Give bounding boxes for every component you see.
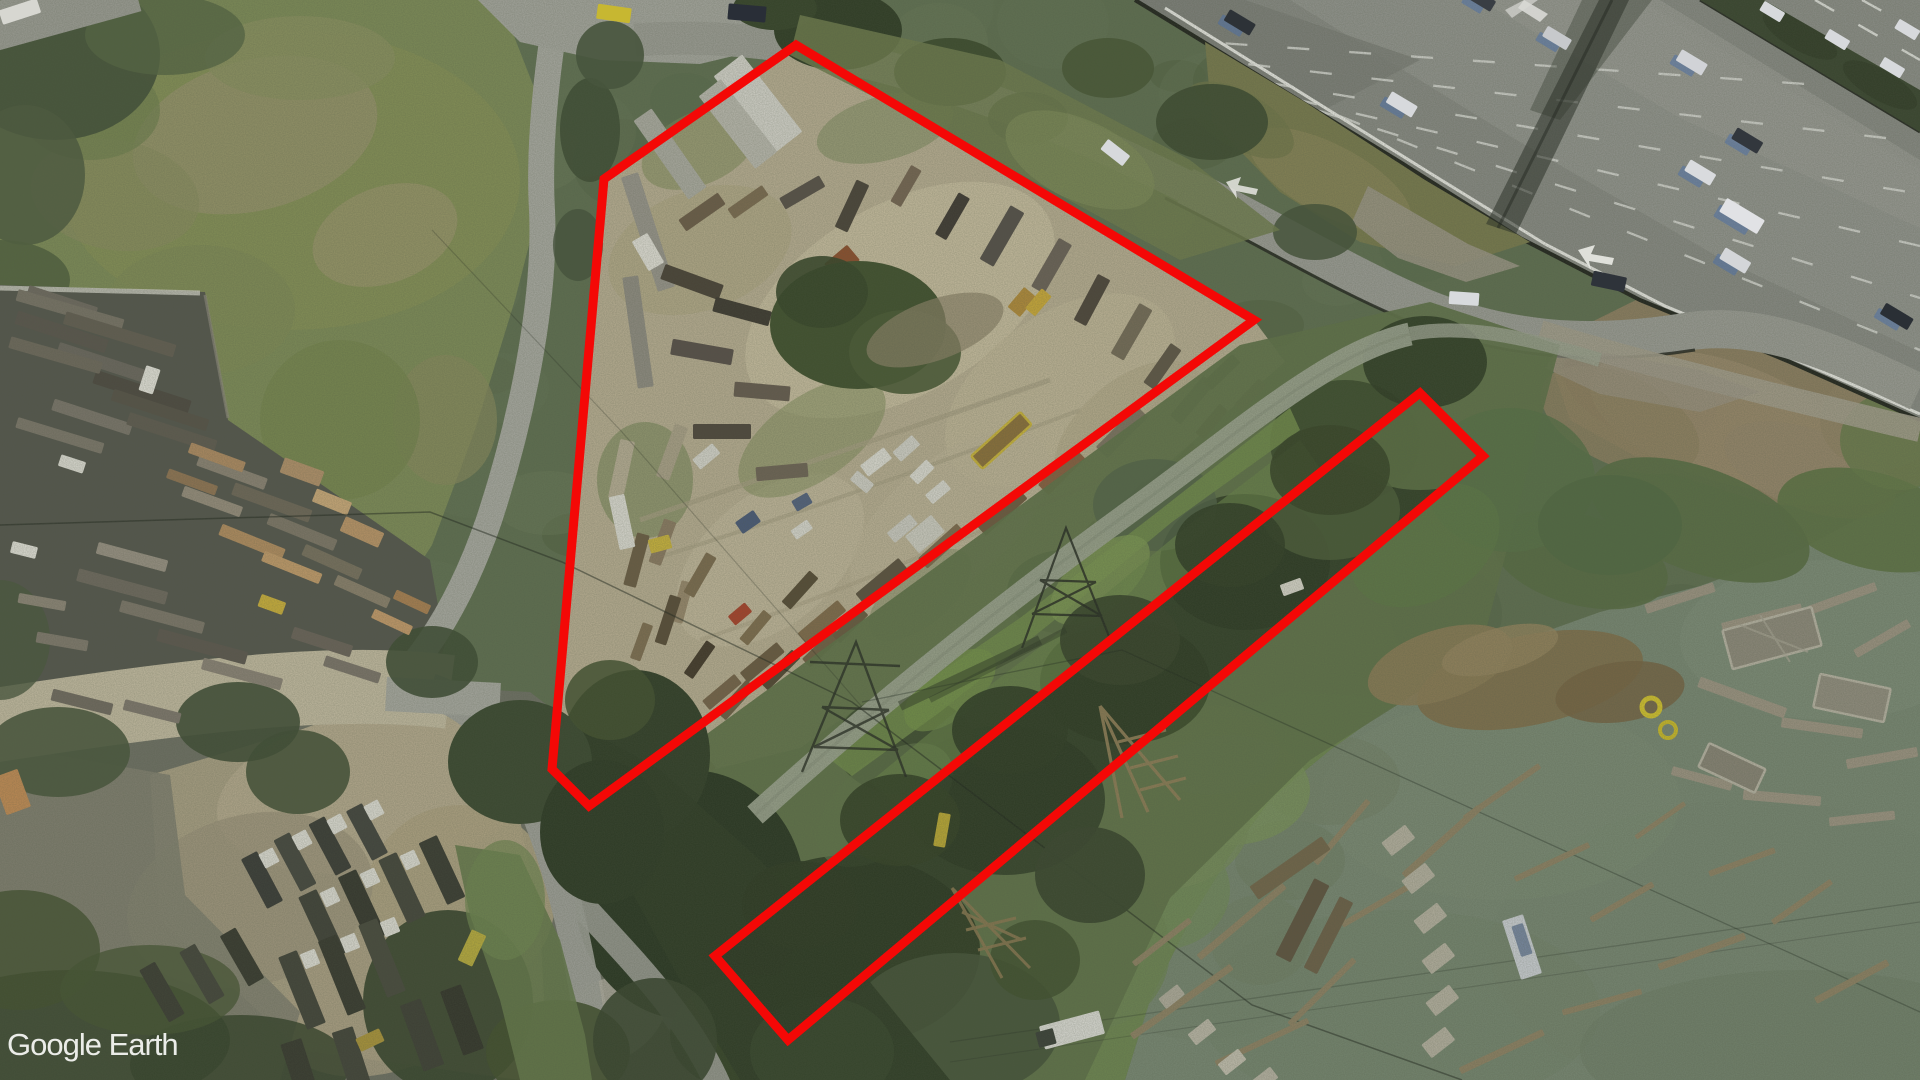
svg-text:Google Earth: Google Earth — [7, 1027, 178, 1062]
